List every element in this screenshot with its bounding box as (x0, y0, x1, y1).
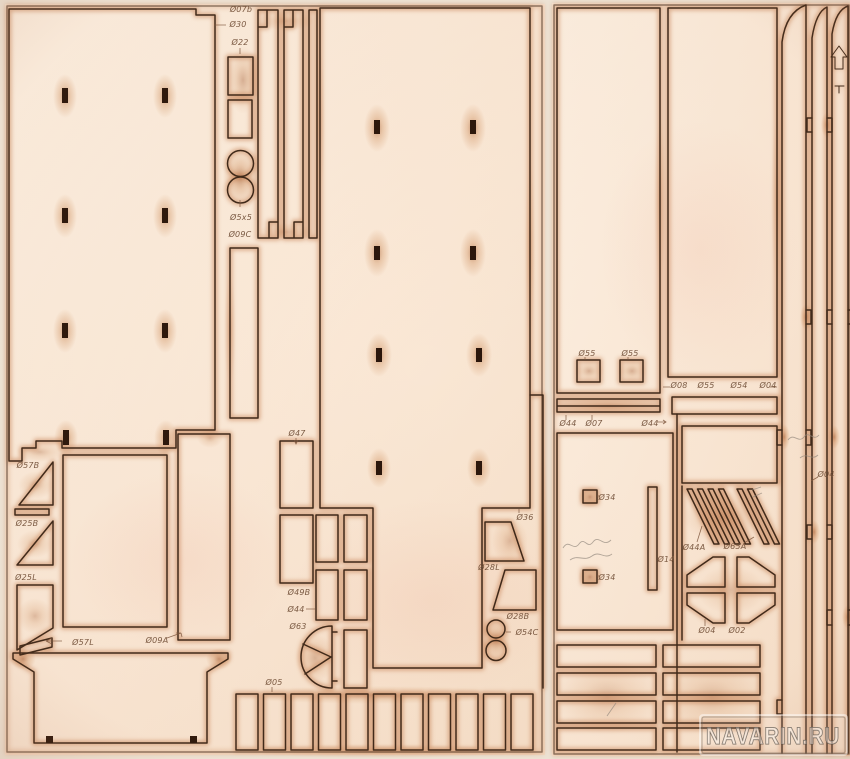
watermark-text: NAVARIN.RU (706, 723, 840, 750)
lasercut-sheets-photo: Ø07bØ30Ø22Ø5x5Ø09CØ57BØ25BØ25LØ57LØ09AØ4… (0, 0, 850, 759)
watermark: NAVARIN.RU (700, 715, 847, 755)
photo-canvas: Ø07bØ30Ø22Ø5x5Ø09CØ57BØ25BØ25LØ57LØ09AØ4… (0, 0, 850, 759)
photo-vignette (0, 0, 850, 759)
